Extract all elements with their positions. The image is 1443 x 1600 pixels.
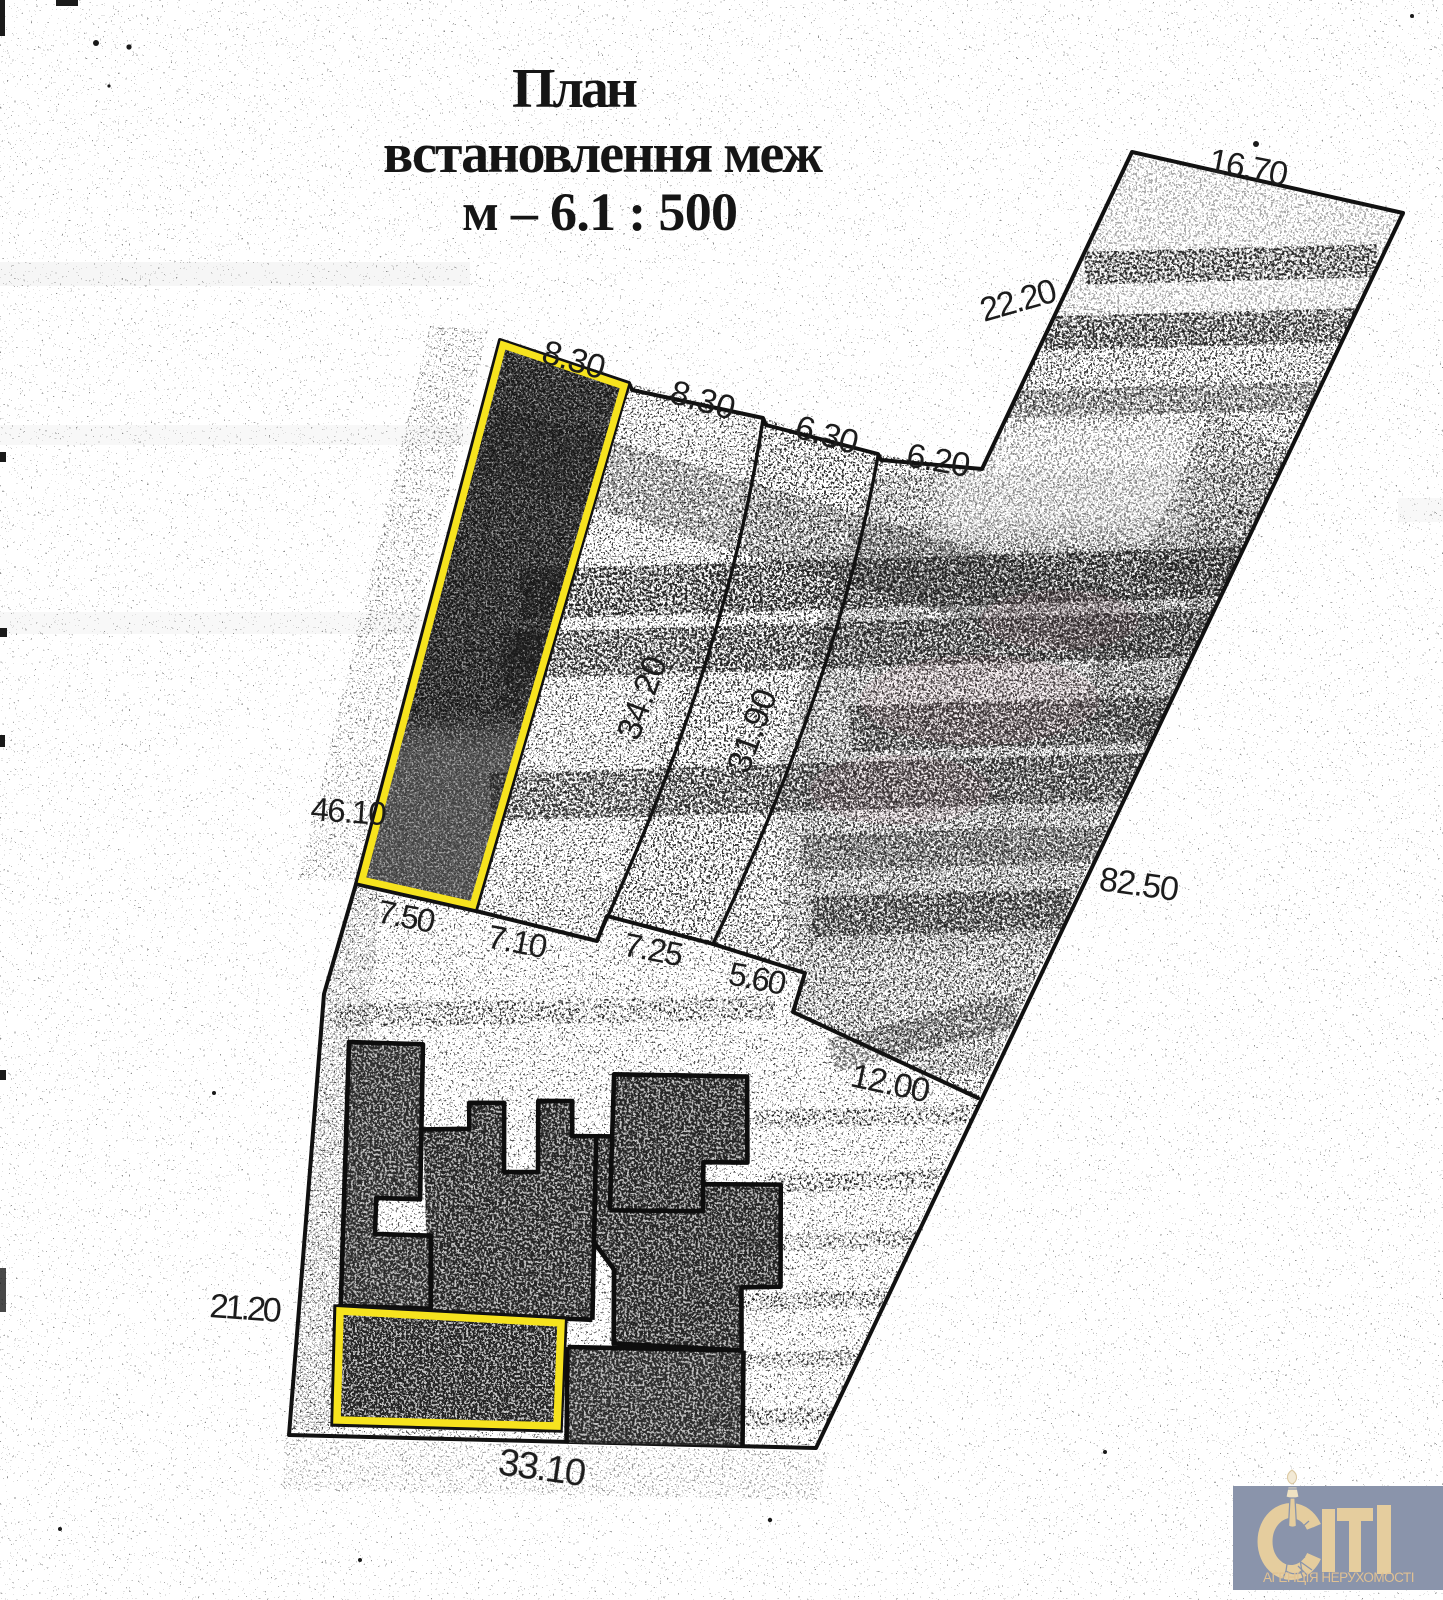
- svg-text:м – 6.1 : 500: м – 6.1 : 500: [462, 182, 738, 242]
- svg-text:встановлення меж: встановлення меж: [383, 123, 823, 185]
- svg-text:План: План: [512, 58, 638, 120]
- svg-text:21.20: 21.20: [208, 1287, 282, 1330]
- svg-text:46.10: 46.10: [310, 790, 388, 832]
- svg-text:АГЕНЦІЯ НЕРУХОМОСТІ: АГЕНЦІЯ НЕРУХОМОСТІ: [1263, 1570, 1415, 1585]
